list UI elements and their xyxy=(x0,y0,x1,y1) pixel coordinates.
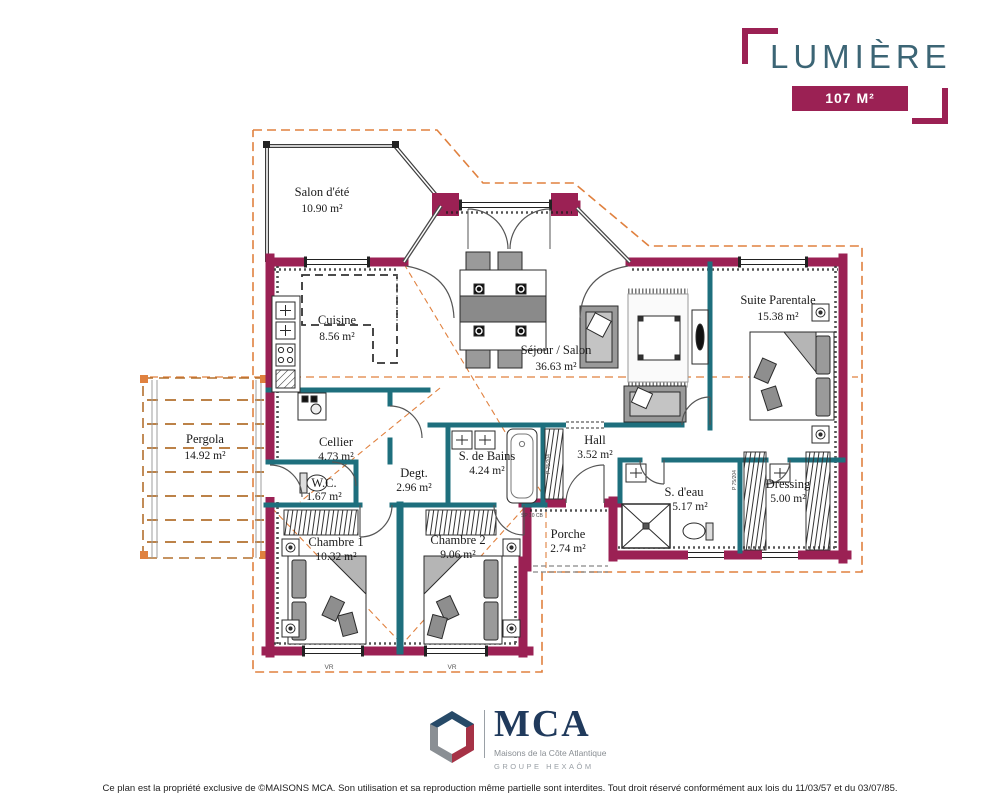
shutter-label: VR xyxy=(324,664,333,671)
vanity-sdeau xyxy=(626,464,646,482)
floor-plan-page: LUMIÈRE 107 M² xyxy=(0,0,1000,800)
porch-steps xyxy=(533,566,608,572)
bathtub xyxy=(507,429,537,503)
title-block: LUMIÈRE 107 M² xyxy=(742,28,948,124)
room-label: Chambre 1 xyxy=(308,535,363,549)
plan-title: LUMIÈRE xyxy=(770,38,940,76)
room-label: S. d'eau xyxy=(664,485,704,499)
room-area: 4.73 m² xyxy=(318,451,354,463)
room-label: Cuisine xyxy=(318,313,357,327)
logo-cube-icon xyxy=(426,708,478,766)
sliding-door xyxy=(566,419,604,431)
room-area: 1.67 m² xyxy=(306,491,342,503)
room-label: W.C. xyxy=(311,476,336,490)
porch-code-label: SP 10 CB xyxy=(521,513,544,519)
room-area: 2.74 m² xyxy=(550,543,586,555)
room-label: Pergola xyxy=(186,432,224,446)
room-label: S. de Bains xyxy=(459,449,516,463)
toilet-sdeau xyxy=(683,523,713,540)
double-vanity xyxy=(452,431,495,449)
logo-group-name: GROUPE HEXAÔM xyxy=(494,762,594,771)
room-area: 2.96 m² xyxy=(396,482,432,494)
room-area: 15.38 m² xyxy=(757,311,799,323)
room-label: Séjour / Salon xyxy=(521,343,593,357)
pergola-structure xyxy=(140,375,268,559)
logo-divider xyxy=(484,710,485,758)
sofa xyxy=(580,306,618,368)
area-badge: 107 M² xyxy=(792,86,908,111)
room-label: Chambre 2 xyxy=(430,533,485,547)
room-area: 5.17 m² xyxy=(672,501,708,513)
shutter-label: VR xyxy=(447,664,456,671)
room-area: 36.63 m² xyxy=(535,361,577,373)
room-area: 10.32 m² xyxy=(315,551,357,563)
room-label: Cellier xyxy=(319,435,354,449)
room-area: 8.56 m² xyxy=(319,331,355,343)
corner-bracket-bottom-icon xyxy=(912,88,948,124)
room-area: 3.52 m² xyxy=(577,449,613,461)
room-label: Salon d'été xyxy=(295,185,350,199)
tv-unit xyxy=(692,310,708,364)
washer xyxy=(298,393,326,420)
room-area: 4.24 m² xyxy=(469,465,505,477)
room-label: Degt. xyxy=(400,466,427,480)
logo-tagline: Maisons de la Côte Atlantique xyxy=(494,748,606,758)
sofa-2 xyxy=(624,386,686,422)
room-area: 5.00 m² xyxy=(770,493,806,505)
bed-suite xyxy=(750,304,834,443)
door-code-label: P 75/204 xyxy=(546,454,552,474)
room-label: Dressing xyxy=(766,477,811,491)
shower xyxy=(622,504,670,548)
logo-brand: MCA xyxy=(494,702,591,746)
copyright-footer: Ce plan est la propriété exclusive de ©M… xyxy=(0,783,1000,794)
company-logo: MCA Maisons de la Côte Atlantique GROUPE… xyxy=(408,702,628,774)
room-label: Suite Parentale xyxy=(740,293,816,307)
room-label: Porche xyxy=(551,527,586,541)
room-area: 9.06 m² xyxy=(440,549,476,561)
coffee-table xyxy=(638,316,680,360)
door-code-label: P 75/204 xyxy=(732,470,738,490)
room-label: Hall xyxy=(584,433,606,447)
room-area: 14.92 m² xyxy=(184,450,226,462)
room-area: 10.90 m² xyxy=(301,203,343,215)
